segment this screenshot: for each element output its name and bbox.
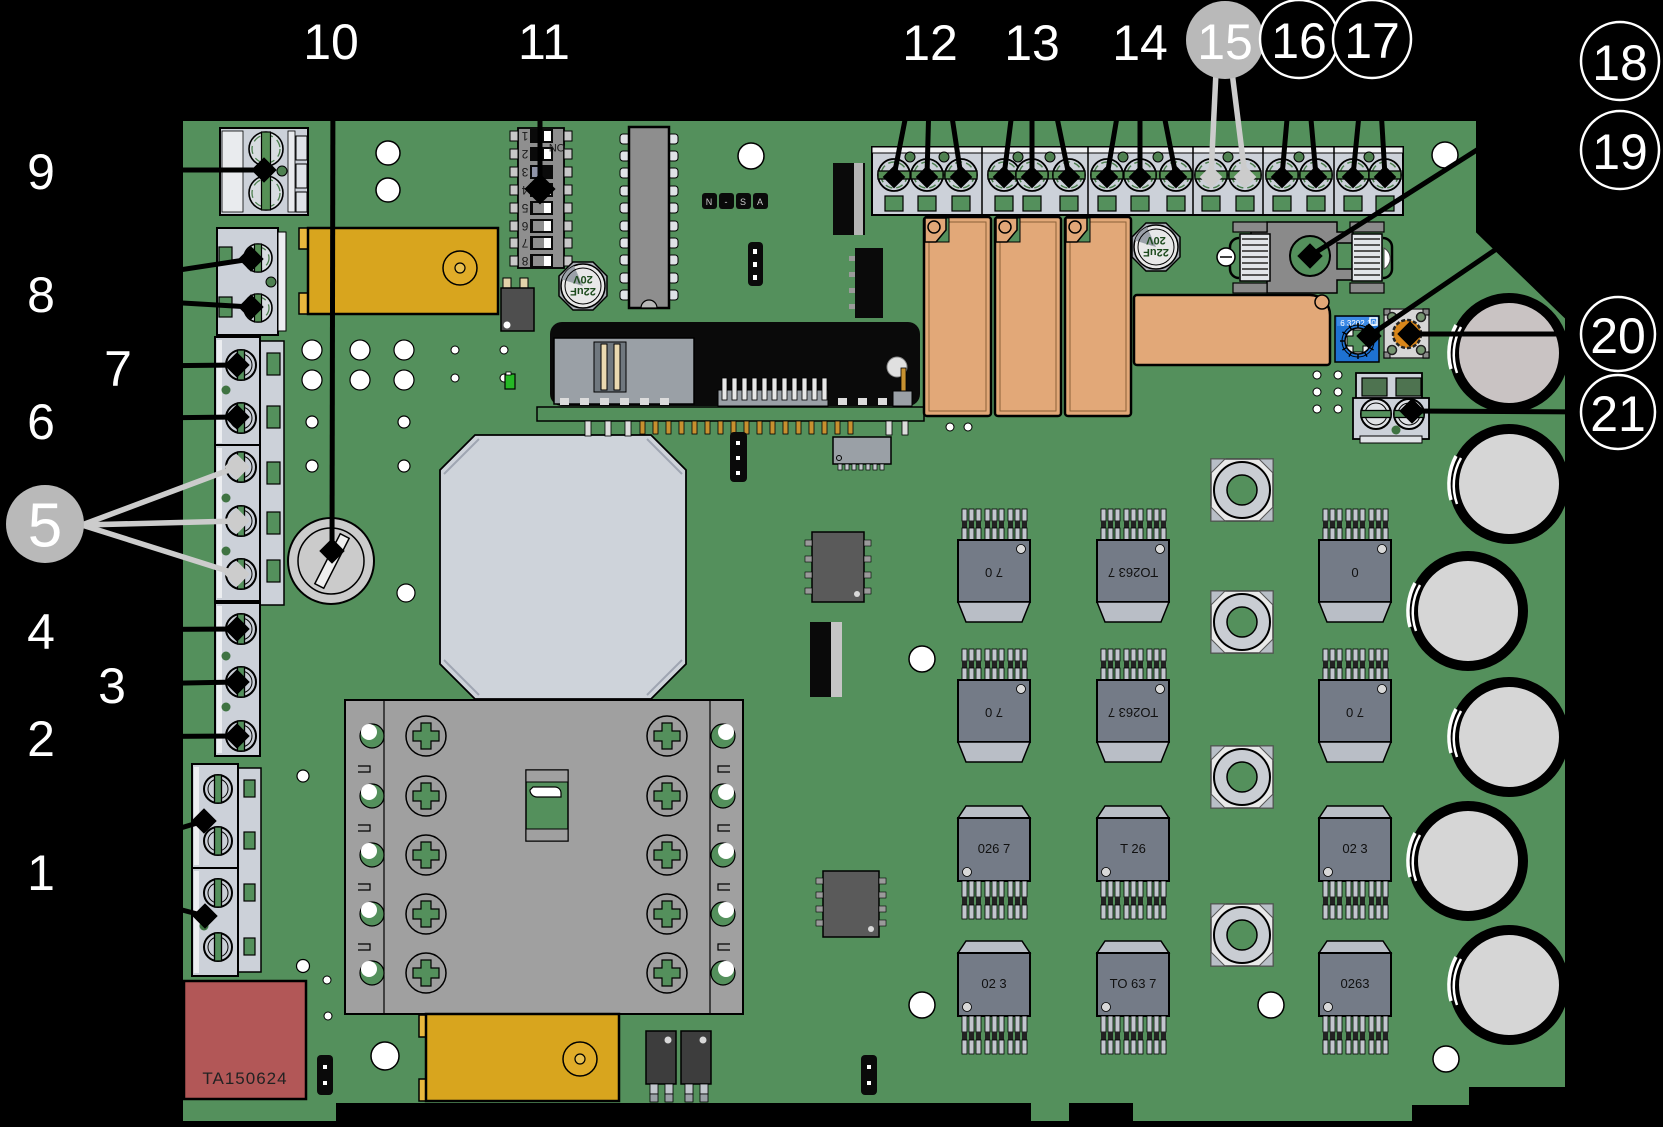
svg-text:0: 0	[1351, 565, 1358, 580]
svg-text:6: 6	[521, 219, 528, 233]
svg-text:026 7: 026 7	[978, 841, 1011, 856]
svg-text:7: 7	[521, 236, 528, 250]
svg-text:S: S	[740, 197, 746, 207]
svg-text:20V: 20V	[573, 273, 593, 285]
svg-text:3: 3	[521, 165, 528, 179]
svg-text:22uF: 22uF	[570, 285, 596, 297]
svg-text:7: 7	[104, 341, 132, 397]
svg-text:10: 10	[303, 14, 359, 70]
svg-text:4: 4	[27, 604, 55, 660]
svg-text:02 3: 02 3	[1342, 841, 1367, 856]
svg-text:0263: 0263	[1341, 976, 1370, 991]
svg-text:3: 3	[98, 658, 126, 714]
svg-text:9: 9	[27, 144, 55, 200]
svg-text:1: 1	[27, 845, 55, 901]
svg-text:20: 20	[1590, 308, 1646, 364]
svg-text:7 0: 7 0	[985, 565, 1003, 580]
svg-text:21: 21	[1590, 386, 1646, 442]
svg-text:8: 8	[521, 254, 528, 268]
svg-text:2: 2	[27, 711, 55, 767]
svg-text:2: 2	[521, 147, 528, 161]
svg-text:22uF: 22uF	[1143, 246, 1169, 258]
svg-text:A: A	[757, 197, 763, 207]
svg-text:7 0: 7 0	[1346, 705, 1364, 720]
svg-text:TO263 7: TO263 7	[1108, 705, 1158, 720]
svg-text:15: 15	[1197, 14, 1253, 70]
svg-text:8: 8	[27, 267, 55, 323]
svg-text:11: 11	[518, 14, 570, 70]
svg-text:5: 5	[28, 492, 62, 561]
svg-text:TO263 7: TO263 7	[1108, 565, 1158, 580]
svg-text:12: 12	[902, 15, 958, 71]
svg-text:-: -	[725, 197, 728, 207]
svg-text:TA150624: TA150624	[202, 1069, 287, 1088]
svg-text:T 26: T 26	[1120, 841, 1146, 856]
svg-text:7 0: 7 0	[985, 705, 1003, 720]
svg-text:19: 19	[1592, 124, 1648, 180]
svg-text:N: N	[706, 197, 713, 207]
svg-text:6: 6	[27, 394, 55, 450]
svg-text:TO 63 7: TO 63 7	[1110, 976, 1157, 991]
svg-text:17: 17	[1344, 13, 1400, 69]
svg-text:16: 16	[1271, 13, 1327, 69]
svg-text:ON: ON	[549, 141, 566, 153]
svg-text:13: 13	[1004, 15, 1060, 71]
svg-text:20V: 20V	[1146, 234, 1166, 246]
svg-text:1: 1	[521, 129, 528, 143]
svg-text:02 3: 02 3	[981, 976, 1006, 991]
svg-text:18: 18	[1592, 35, 1648, 91]
svg-text:14: 14	[1112, 15, 1168, 71]
svg-text:5: 5	[521, 201, 528, 215]
